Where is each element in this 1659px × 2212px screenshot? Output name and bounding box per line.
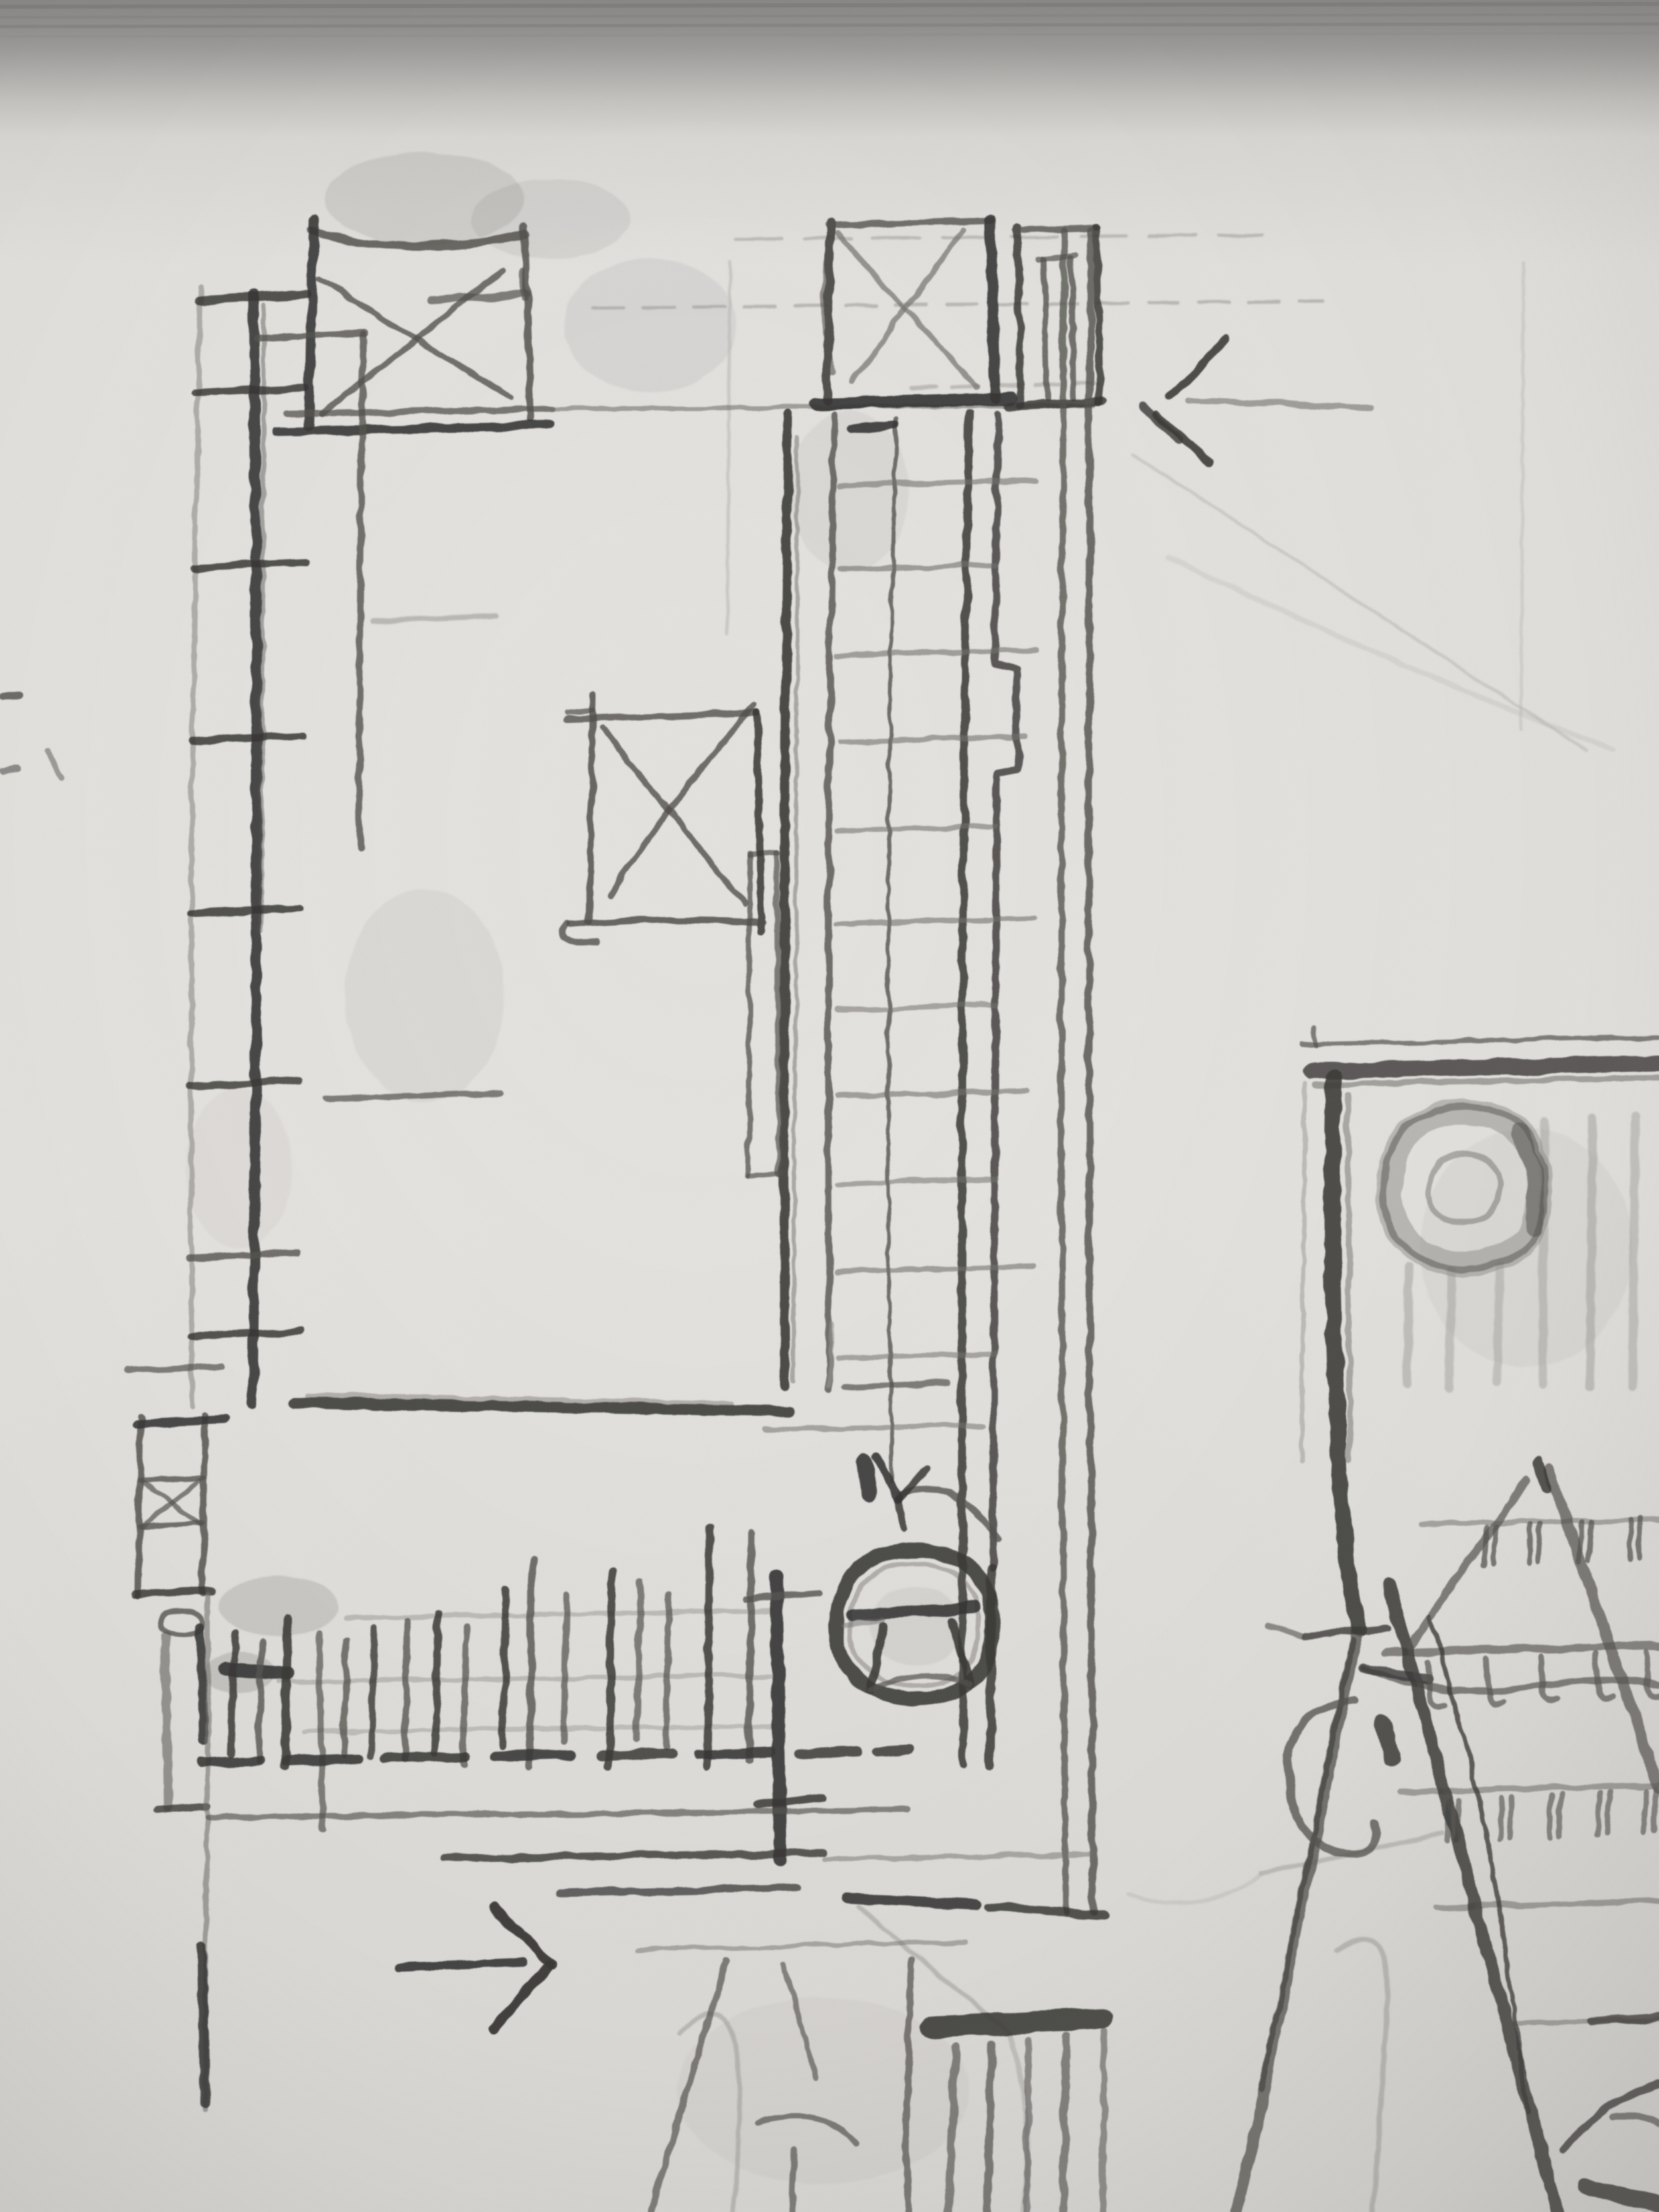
pencil-sketch-canvas [0,0,1659,2212]
paper-grain-texture [0,0,1659,2212]
photo-of-pencil-sketch [0,0,1659,2212]
